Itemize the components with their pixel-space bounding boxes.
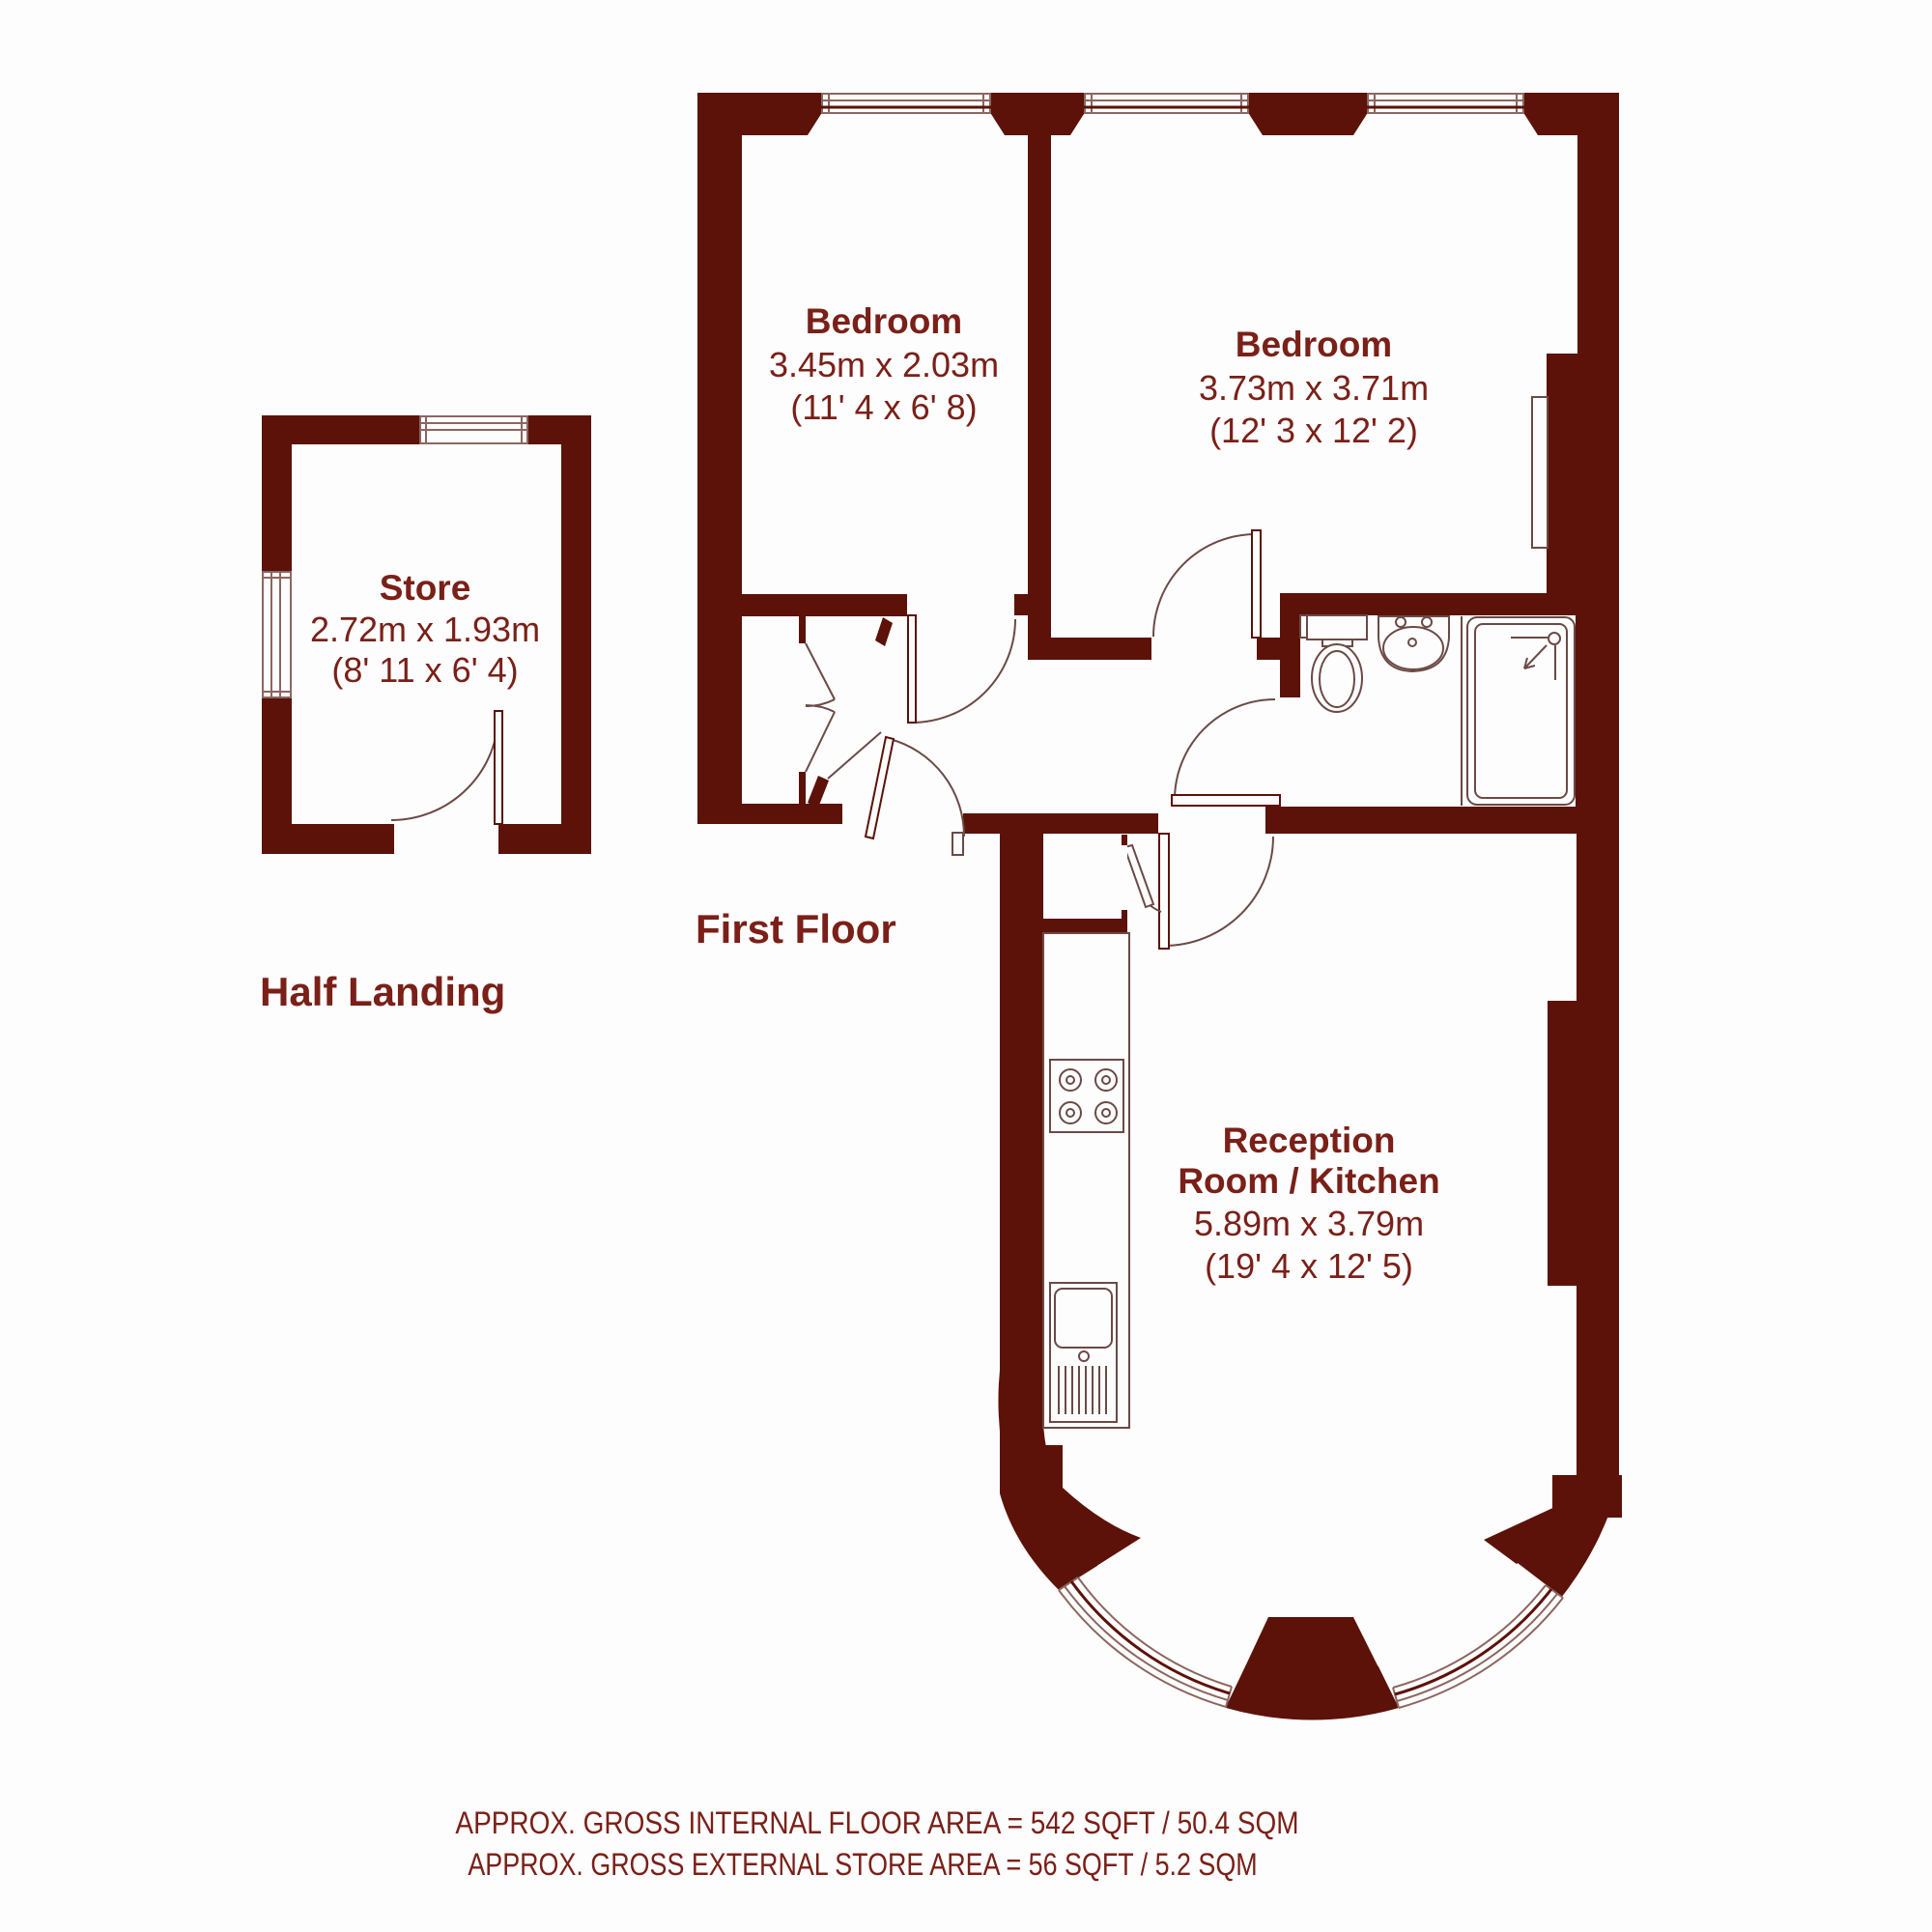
svg-text:Bedroom: Bedroom	[1236, 325, 1392, 364]
svg-text:First Floor: First Floor	[696, 906, 896, 952]
svg-text:Room / Kitchen: Room / Kitchen	[1178, 1161, 1439, 1201]
svg-text:Store: Store	[380, 568, 471, 608]
svg-text:3.73m x 3.71m: 3.73m x 3.71m	[1199, 368, 1429, 408]
svg-text:Bedroom: Bedroom	[806, 301, 962, 341]
svg-text:(12' 3 x 12' 2): (12' 3 x 12' 2)	[1209, 411, 1418, 450]
svg-text:(8' 11 x 6' 4): (8' 11 x 6' 4)	[331, 650, 518, 690]
svg-text:5.89m x 3.79m: 5.89m x 3.79m	[1194, 1204, 1424, 1243]
svg-text:2.72m x 1.93m: 2.72m x 1.93m	[310, 610, 540, 649]
svg-text:(19' 4 x 12' 5): (19' 4 x 12' 5)	[1205, 1246, 1413, 1286]
svg-text:Reception: Reception	[1223, 1121, 1396, 1160]
svg-text:3.45m x 2.03m: 3.45m x 2.03m	[769, 345, 999, 384]
svg-text:APPROX. GROSS EXTERNAL STORE A: APPROX. GROSS EXTERNAL STORE AREA = 56 S…	[468, 1848, 1257, 1883]
svg-text:(11' 4 x 6' 8): (11' 4 x 6' 8)	[790, 387, 977, 427]
svg-text:Half Landing: Half Landing	[260, 969, 505, 1014]
svg-text:APPROX. GROSS INTERNAL FLOOR A: APPROX. GROSS INTERNAL FLOOR AREA = 542 …	[455, 1806, 1298, 1840]
